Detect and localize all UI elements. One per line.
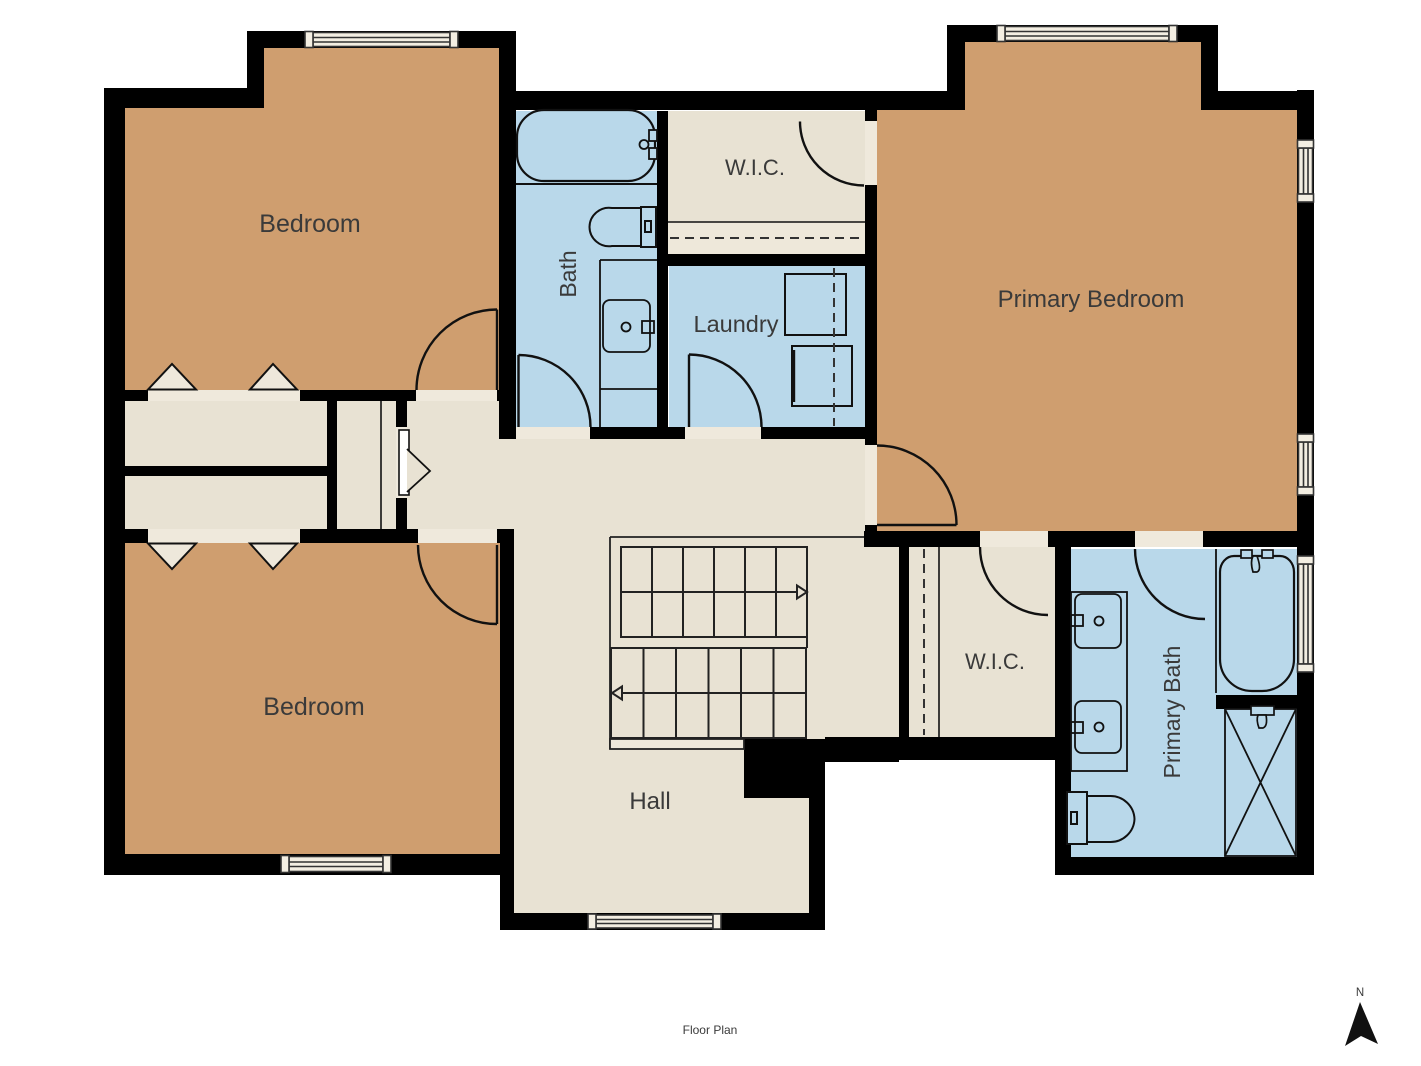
svg-text:Bedroom: Bedroom (259, 210, 360, 238)
svg-text:N: N (1356, 987, 1364, 999)
svg-text:Hall: Hall (629, 788, 670, 815)
svg-text:Bedroom: Bedroom (263, 693, 364, 721)
svg-text:W.I.C.: W.I.C. (725, 155, 785, 180)
svg-text:W.I.C.: W.I.C. (965, 649, 1025, 674)
svg-text:Bath: Bath (555, 250, 581, 297)
svg-text:Floor Plan: Floor Plan (683, 1023, 738, 1037)
svg-text:Laundry: Laundry (694, 311, 779, 337)
svg-text:Primary Bath: Primary Bath (1159, 646, 1185, 779)
svg-text:Primary Bedroom: Primary Bedroom (998, 286, 1185, 313)
